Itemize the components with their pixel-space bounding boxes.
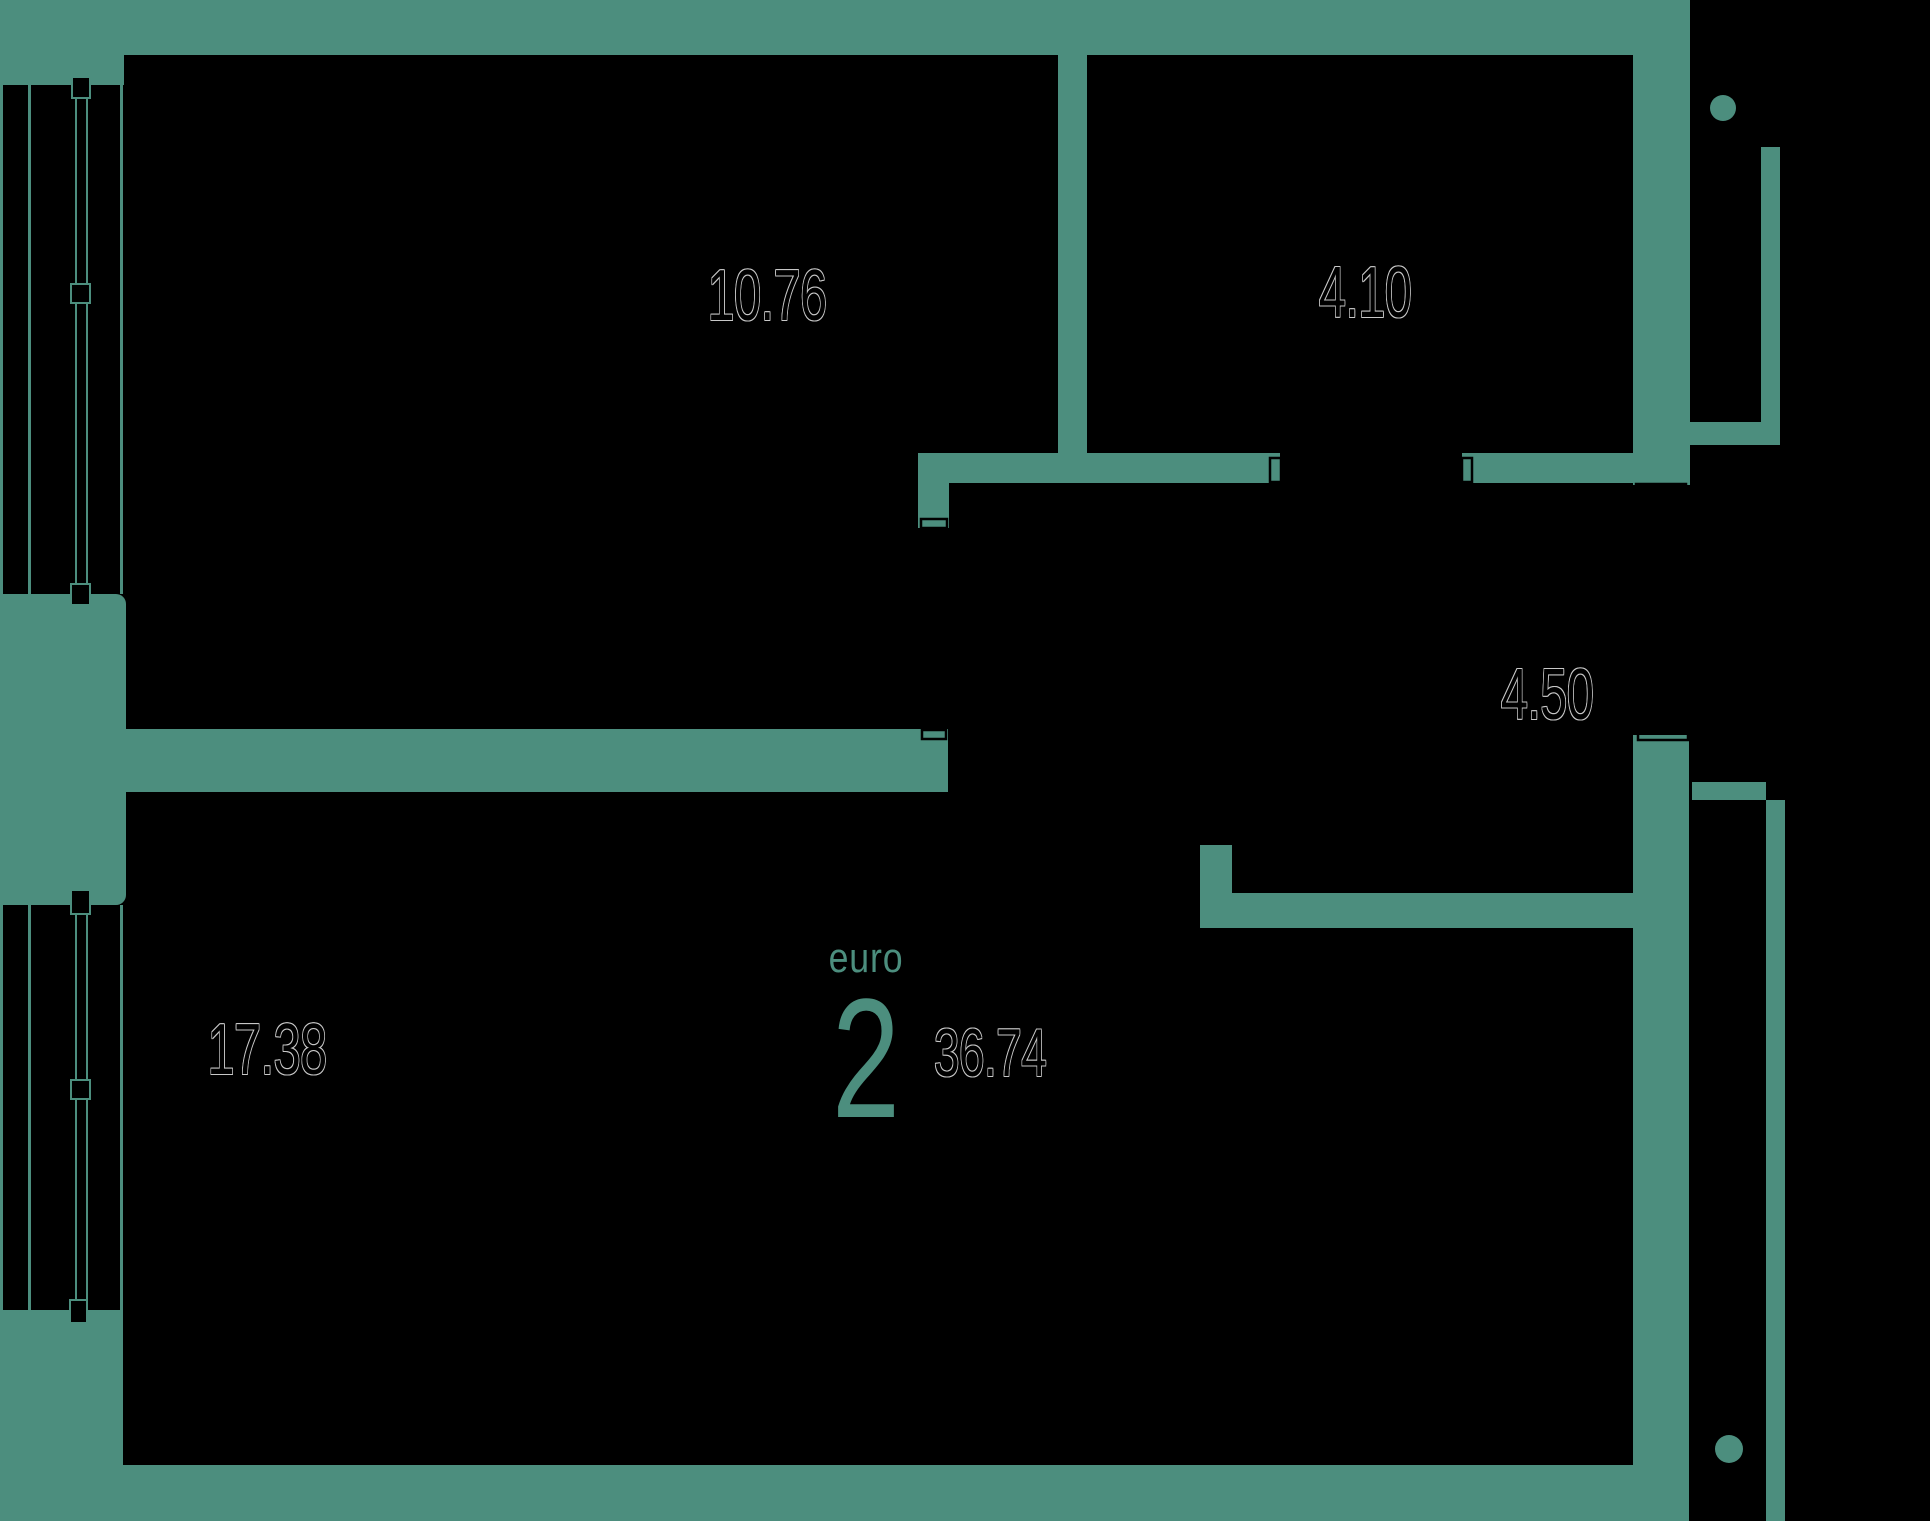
window-frame-line — [86, 914, 88, 1080]
window-frame-line — [75, 98, 77, 284]
bathroom-left-wall — [1058, 55, 1087, 483]
bathroom-area-label: 4.10 — [1319, 252, 1412, 334]
upper-balcony-drain-dot — [1710, 95, 1736, 121]
hall-upper-wall-right — [1462, 453, 1633, 483]
loggia-inner-line-upper — [28, 85, 31, 594]
window-frame-line — [75, 1099, 77, 1300]
window-cap — [72, 77, 90, 98]
loggia-inner-line-lower — [28, 905, 31, 1312]
living-top-wall-stub — [1200, 845, 1232, 893]
floor-plan-drawing — [0, 0, 1930, 1521]
room-count-label: 2 — [832, 961, 900, 1157]
bedroom-window — [71, 77, 90, 605]
right-lower-vertical-wall — [1633, 735, 1689, 1489]
living-area-label: 17.38 — [207, 1009, 326, 1091]
window-frame-line — [86, 1099, 88, 1300]
living-window — [70, 890, 90, 1323]
bedroom-door-stub — [918, 483, 949, 528]
total-area-label: 36.74 — [934, 1014, 1046, 1092]
right-upper-vertical-wall — [1633, 0, 1690, 485]
window-mullion — [71, 1080, 90, 1099]
window-cap — [70, 1300, 87, 1323]
window-frame-line — [86, 98, 88, 284]
upper-balcony-arm — [1690, 422, 1761, 445]
lower-balcony-drain-dot — [1715, 1435, 1743, 1463]
bedroom-bottom-wall — [120, 729, 948, 792]
floor-plan: 10.76 4.10 4.50 17.38 euro 2 36.74 — [0, 0, 1930, 1521]
upper-balcony-parapet — [1761, 147, 1780, 445]
entrance-door-jamb-top — [1636, 484, 1686, 493]
window-frame-line — [86, 303, 88, 584]
left-middle-pier-square-edge — [0, 594, 60, 905]
window-frame-line — [75, 914, 77, 1080]
top-left-corner-block — [0, 0, 124, 85]
lower-balcony-parapet — [1766, 800, 1785, 1521]
window-mullion — [71, 284, 90, 303]
window-cap — [71, 890, 90, 914]
bottom-wall — [0, 1465, 1689, 1521]
hall-upper-wall-left — [918, 453, 1280, 483]
living-top-wall — [1200, 893, 1633, 928]
window-frame-line — [75, 303, 77, 584]
bottom-left-corner-block — [0, 1310, 123, 1470]
window-cap — [71, 584, 90, 605]
top-wall — [124, 0, 1690, 55]
bedroom-area-label: 10.76 — [707, 255, 826, 337]
walls — [0, 0, 1785, 1521]
loggia-outer-edge-line — [0, 85, 3, 1310]
lower-balcony-arm — [1692, 782, 1766, 800]
loggia-boundary-line-lower — [120, 905, 123, 1326]
hall-area-label: 4.50 — [1501, 654, 1594, 736]
loggia-boundary-line-upper — [120, 70, 123, 594]
